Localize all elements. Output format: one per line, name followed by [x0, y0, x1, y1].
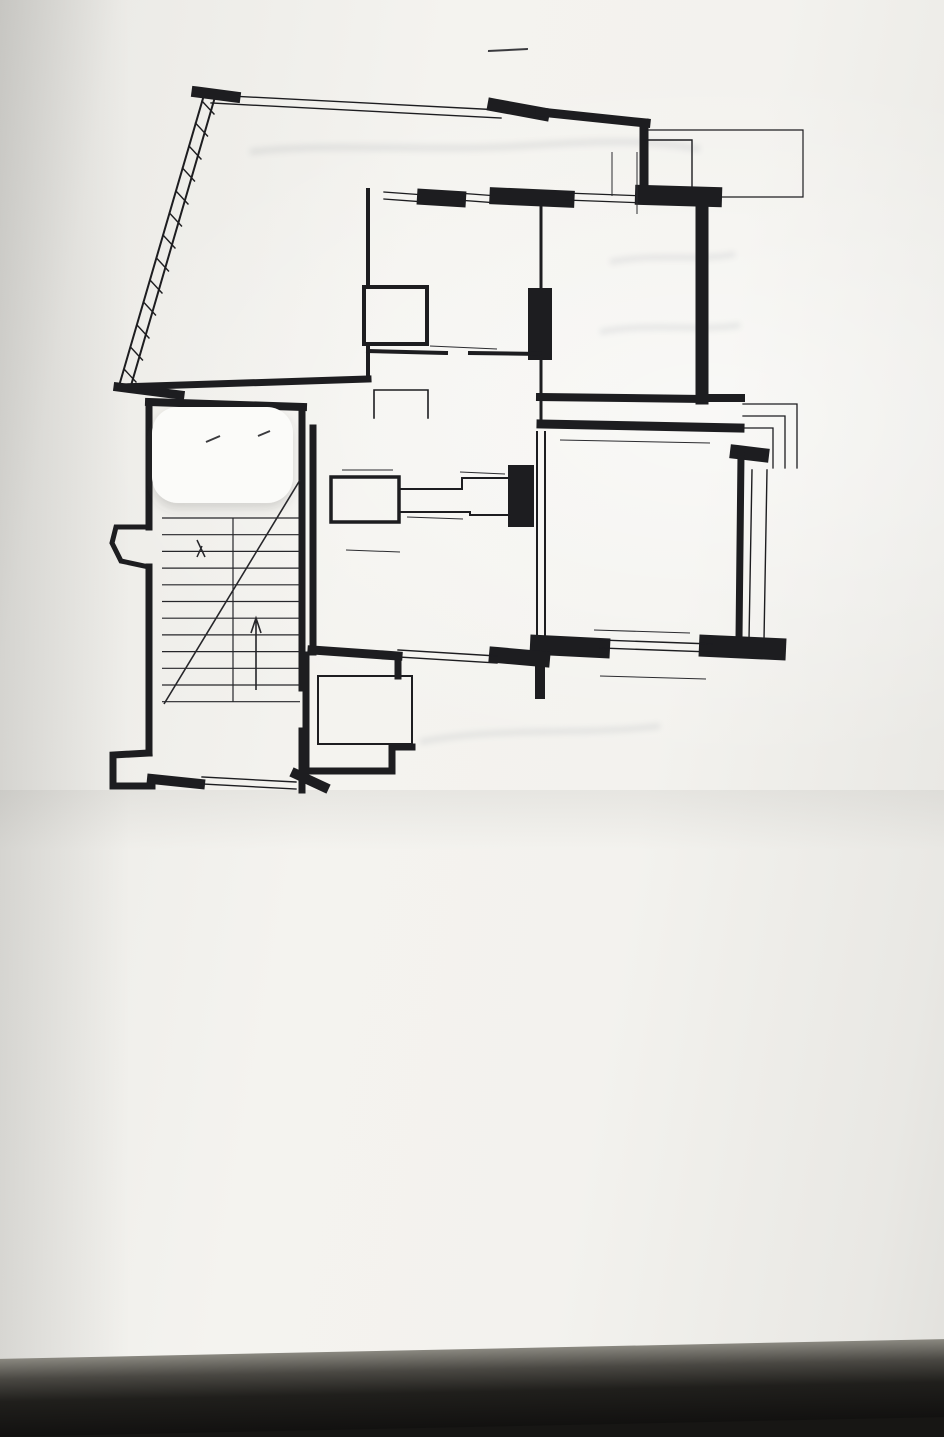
signature-row [0, 834, 944, 941]
scanned-document-photo [0, 0, 944, 1393]
correction-fluid-blob [152, 407, 293, 503]
stairs-direction-arrow [251, 618, 261, 690]
technical-characteristics-form [0, 822, 944, 941]
photo-background-edge [0, 1339, 944, 1437]
floor-plan-svg [0, 0, 944, 812]
dimension-guide-lines [342, 152, 710, 679]
paper-sheet [0, 0, 944, 1393]
stairs [162, 480, 300, 704]
